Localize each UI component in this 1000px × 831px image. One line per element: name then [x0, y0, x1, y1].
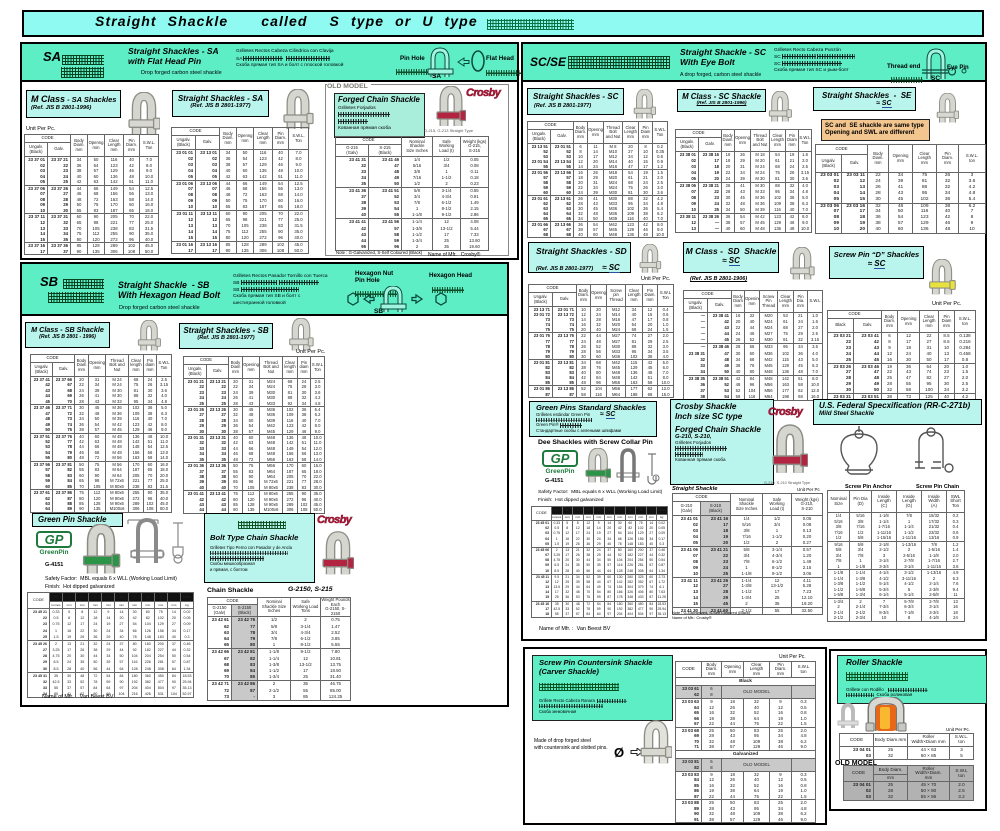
svg-text:GreenPin: GreenPin: [40, 549, 69, 556]
svg-text:GP: GP: [45, 532, 64, 547]
svg-text:GreenPin: GreenPin: [546, 468, 575, 475]
svg-text:GP: GP: [551, 451, 570, 466]
